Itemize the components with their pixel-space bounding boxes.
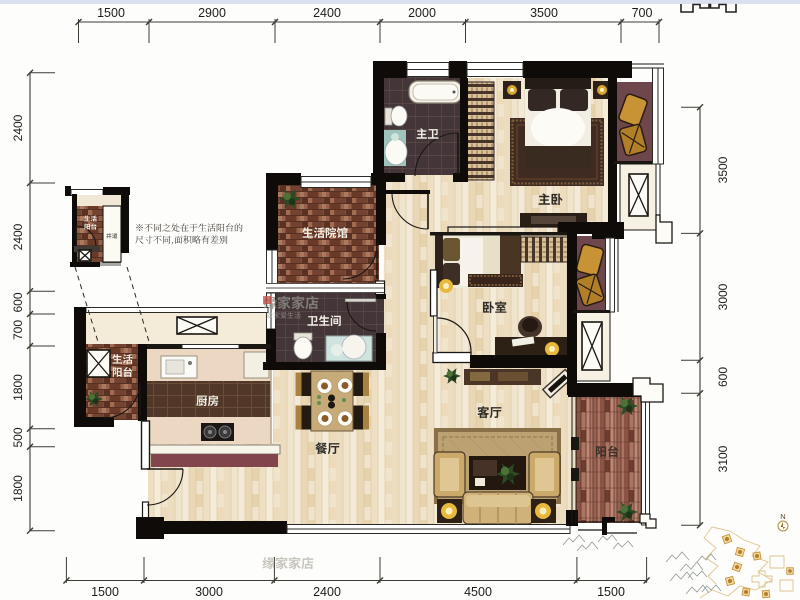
svg-text:2400: 2400 <box>11 114 25 141</box>
svg-text:1800: 1800 <box>11 374 25 401</box>
svg-text:700: 700 <box>632 6 653 20</box>
svg-text:2900: 2900 <box>198 6 226 20</box>
svg-text:3100: 3100 <box>716 445 730 472</box>
svg-text:1500: 1500 <box>597 585 625 599</box>
svg-text:2000: 2000 <box>408 6 436 20</box>
svg-text:1500: 1500 <box>97 6 125 20</box>
svg-text:3500: 3500 <box>530 6 558 20</box>
svg-text:4500: 4500 <box>464 585 492 599</box>
svg-text:600: 600 <box>11 292 25 312</box>
svg-text:600: 600 <box>716 367 730 387</box>
svg-text:2400: 2400 <box>11 223 25 250</box>
svg-text:1500: 1500 <box>91 585 119 599</box>
svg-text:500: 500 <box>11 427 25 447</box>
svg-text:1800: 1800 <box>11 475 25 502</box>
svg-text:3000: 3000 <box>716 283 730 310</box>
svg-text:N: N <box>780 512 785 521</box>
svg-text:3500: 3500 <box>716 156 730 183</box>
svg-text:2400: 2400 <box>313 6 341 20</box>
svg-text:3000: 3000 <box>195 585 223 599</box>
svg-text:2400: 2400 <box>313 585 341 599</box>
svg-text:700: 700 <box>11 320 25 340</box>
